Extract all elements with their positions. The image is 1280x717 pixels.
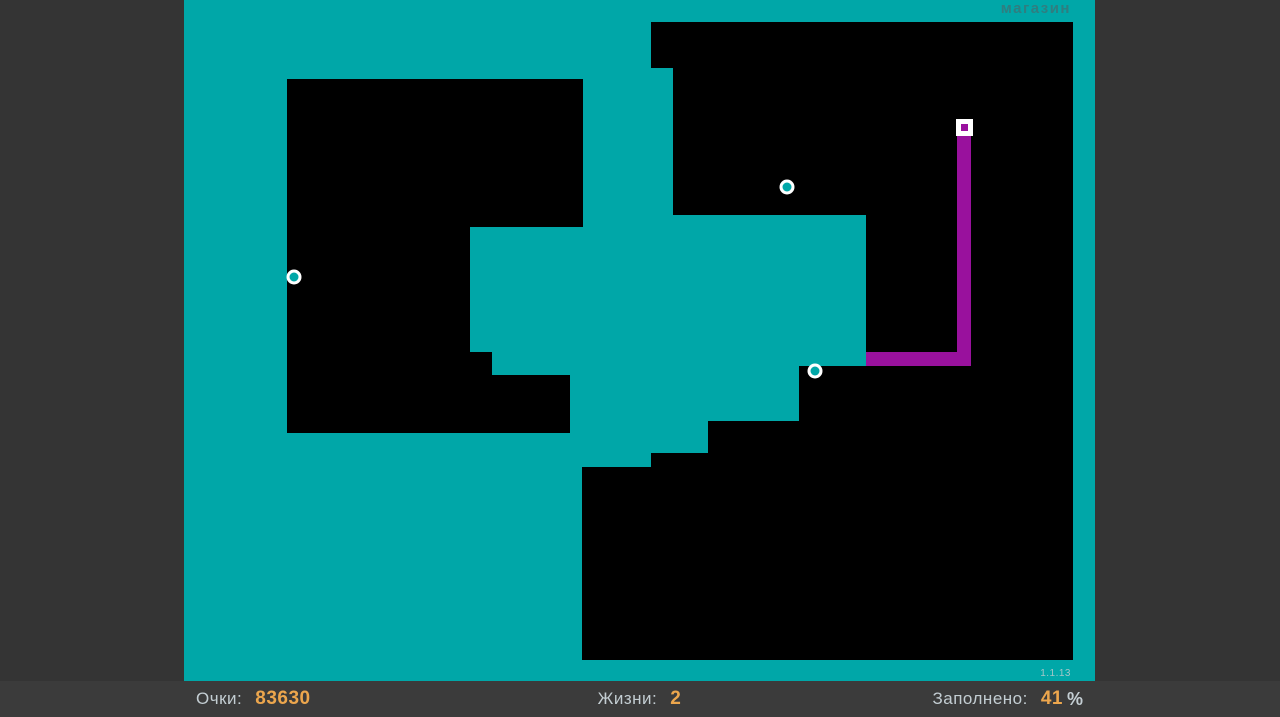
filled-group: Заполнено: 41 % xyxy=(933,681,1084,717)
filled-value: 41 xyxy=(1041,688,1063,710)
player-trail-segment xyxy=(866,352,971,366)
enemy-ball-core xyxy=(290,273,299,282)
player-marker-core xyxy=(961,124,968,131)
filled-unit: % xyxy=(1067,689,1083,710)
version-label: 1.1.13 xyxy=(1040,668,1071,679)
maze-svg xyxy=(184,0,1095,681)
lives-label: Жизни: xyxy=(598,689,658,709)
filled-label: Заполнено: xyxy=(933,689,1028,709)
hud-inner: Очки: 83630 Жизни: 2 Заполнено: 41 % xyxy=(184,681,1095,717)
enemy-ball-core xyxy=(811,367,820,376)
hud-bar: Очки: 83630 Жизни: 2 Заполнено: 41 % xyxy=(0,681,1280,717)
score-value: 83630 xyxy=(255,688,310,710)
lives-value: 2 xyxy=(670,688,681,710)
score-label: Очки: xyxy=(196,689,242,709)
captured-black-region xyxy=(582,22,1073,660)
captured-black-region xyxy=(287,79,583,433)
player-trail-segment xyxy=(957,134,971,366)
enemy-ball-core xyxy=(783,183,792,192)
score-group: Очки: 83630 xyxy=(196,681,311,717)
lives-group: Жизни: 2 xyxy=(598,681,682,717)
game-screen: { "colors": { "page_bg": "#343434", "hud… xyxy=(0,0,1280,717)
game-field[interactable]: магазин 1.1.13 xyxy=(184,0,1095,681)
shop-button[interactable]: магазин xyxy=(1001,0,1071,17)
